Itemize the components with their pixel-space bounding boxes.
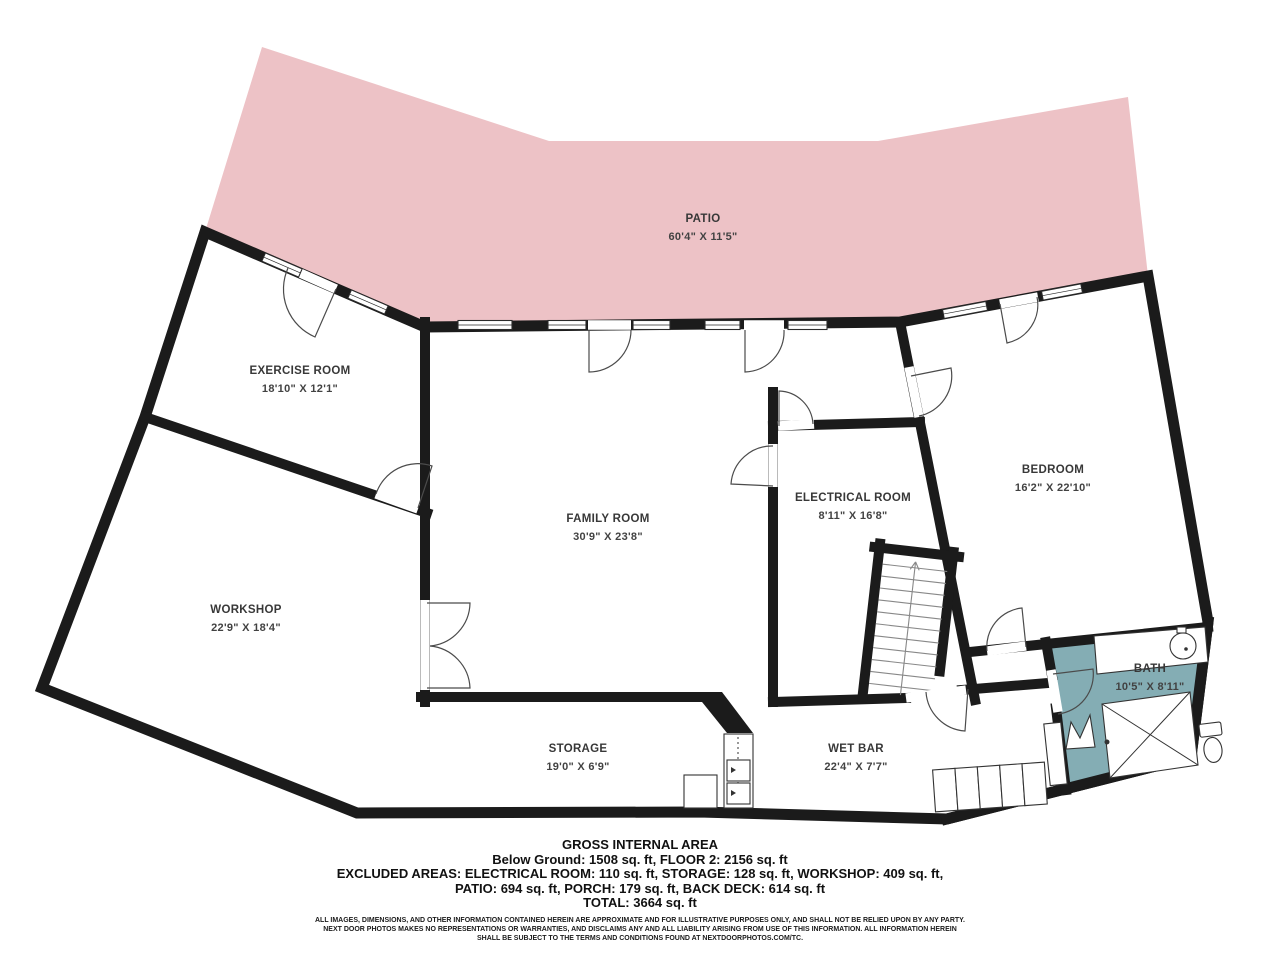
door-arc	[745, 330, 784, 372]
area-total: TOTAL: 3664 sq. ft	[0, 896, 1280, 911]
svg-text:18'10" X 12'1": 18'10" X 12'1"	[262, 383, 338, 395]
toilet	[1199, 722, 1226, 764]
storage-box	[684, 775, 717, 808]
svg-text:30'9" X 23'8": 30'9" X 23'8"	[573, 531, 643, 543]
room-label-storage: STORAGE 19'0" X 6'9"	[546, 743, 609, 773]
sink-drain	[1184, 647, 1188, 651]
svg-text:60'4" X 11'5": 60'4" X 11'5"	[668, 231, 737, 243]
svg-text:19'0" X 6'9": 19'0" X 6'9"	[546, 761, 609, 773]
room-label-exercise-room: EXERCISE ROOM 18'10" X 12'1"	[249, 365, 350, 395]
window	[458, 321, 512, 330]
door-arc	[589, 330, 631, 372]
floorplan-page: PATIO 60'4" X 11'5" EXERCISE ROOM 18'10"…	[0, 0, 1280, 960]
svg-text:22'9" X 18'4": 22'9" X 18'4"	[211, 622, 281, 634]
svg-text:BATH: BATH	[1134, 663, 1166, 675]
building-footprint	[42, 232, 1208, 819]
floorplan-canvas: PATIO 60'4" X 11'5" EXERCISE ROOM 18'10"…	[0, 0, 1280, 838]
svg-text:22'4" X 7'7": 22'4" X 7'7"	[824, 761, 887, 773]
sink	[1170, 633, 1196, 659]
window	[548, 321, 586, 330]
area-line-excluded-2: PATIO: 694 sq. ft, PORCH: 179 sq. ft, BA…	[0, 882, 1280, 897]
svg-text:STORAGE: STORAGE	[549, 743, 608, 755]
wall-corner-diagonal	[694, 692, 753, 733]
room-label-wet-bar: WET BAR 22'4" X 7'7"	[824, 743, 887, 773]
sink-tap	[1177, 627, 1186, 633]
svg-text:BEDROOM: BEDROOM	[1022, 464, 1084, 476]
room-label-workshop: WORKSHOP 22'9" X 18'4"	[210, 604, 281, 634]
disclaimer-line-1: ALL IMAGES, DIMENSIONS, AND OTHER INFORM…	[0, 916, 1280, 925]
disclaimer-text: ALL IMAGES, DIMENSIONS, AND OTHER INFORM…	[0, 916, 1280, 943]
svg-text:8'11" X 16'8": 8'11" X 16'8"	[818, 510, 887, 522]
svg-text:16'2" X 22'10": 16'2" X 22'10"	[1015, 482, 1091, 494]
svg-text:WET BAR: WET BAR	[828, 743, 884, 755]
svg-text:EXERCISE ROOM: EXERCISE ROOM	[249, 365, 350, 377]
svg-text:PATIO: PATIO	[686, 213, 721, 225]
area-summary: GROSS INTERNAL AREA Below Ground: 1508 s…	[0, 838, 1280, 943]
laundry-counter	[724, 734, 753, 808]
svg-text:10'5" X 8'11": 10'5" X 8'11"	[1115, 681, 1184, 693]
window	[633, 321, 670, 330]
room-label-electrical-room: ELECTRICAL ROOM 8'11" X 16'8"	[795, 492, 911, 522]
gross-internal-area-title: GROSS INTERNAL AREA	[0, 838, 1280, 853]
svg-text:FAMILY ROOM: FAMILY ROOM	[566, 513, 649, 525]
disclaimer-line-3: SHALL BE SUBJECT TO THE TERMS AND CONDIT…	[0, 934, 1280, 943]
shower	[1102, 692, 1198, 778]
patio-area	[205, 47, 1148, 327]
area-line-floors: Below Ground: 1508 sq. ft, FLOOR 2: 2156…	[0, 853, 1280, 868]
double-door-arc	[427, 603, 470, 688]
room-label-family-room: FAMILY ROOM 30'9" X 23'8"	[566, 513, 649, 543]
svg-text:WORKSHOP: WORKSHOP	[210, 604, 281, 616]
window	[705, 321, 740, 330]
door-arc	[731, 446, 773, 486]
area-line-excluded-1: EXCLUDED AREAS: ELECTRICAL ROOM: 110 sq.…	[0, 867, 1280, 882]
window	[788, 321, 827, 330]
disclaimer-line-2: NEXT DOOR PHOTOS MAKES NO REPRESENTATION…	[0, 925, 1280, 934]
wet-bar-cabinets	[933, 762, 1048, 812]
svg-text:ELECTRICAL ROOM: ELECTRICAL ROOM	[795, 492, 911, 504]
room-label-bedroom: BEDROOM 16'2" X 22'10"	[1015, 464, 1091, 494]
